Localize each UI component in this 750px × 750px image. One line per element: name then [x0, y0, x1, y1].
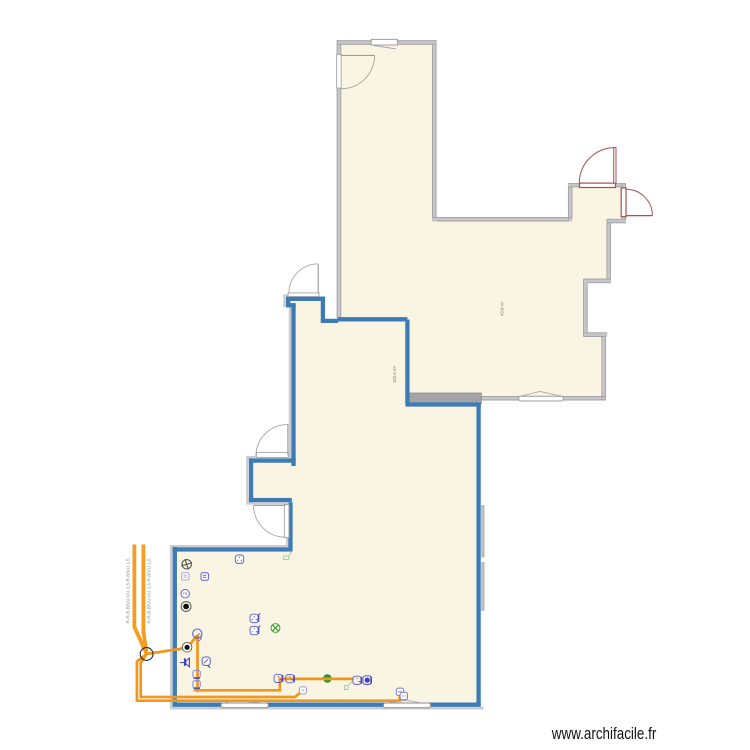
- svg-text:102,6 m²: 102,6 m²: [392, 365, 397, 383]
- svg-text:R-R-B-B/VU-VU 2,5 R-B/VU 1,5: R-R-B-B/VU-VU 2,5 R-B/VU 1,5: [126, 558, 131, 624]
- svg-text:43,8 m²: 43,8 m²: [500, 301, 505, 316]
- svg-text:www.archifacile.fr: www.archifacile.fr: [551, 724, 657, 743]
- svg-text:FR: FR: [183, 592, 188, 596]
- svg-text:R-R-B-B/VU-VU 2,5 R-B/VU 1,5: R-R-B-B/VU-VU 2,5 R-B/VU 1,5: [146, 558, 151, 624]
